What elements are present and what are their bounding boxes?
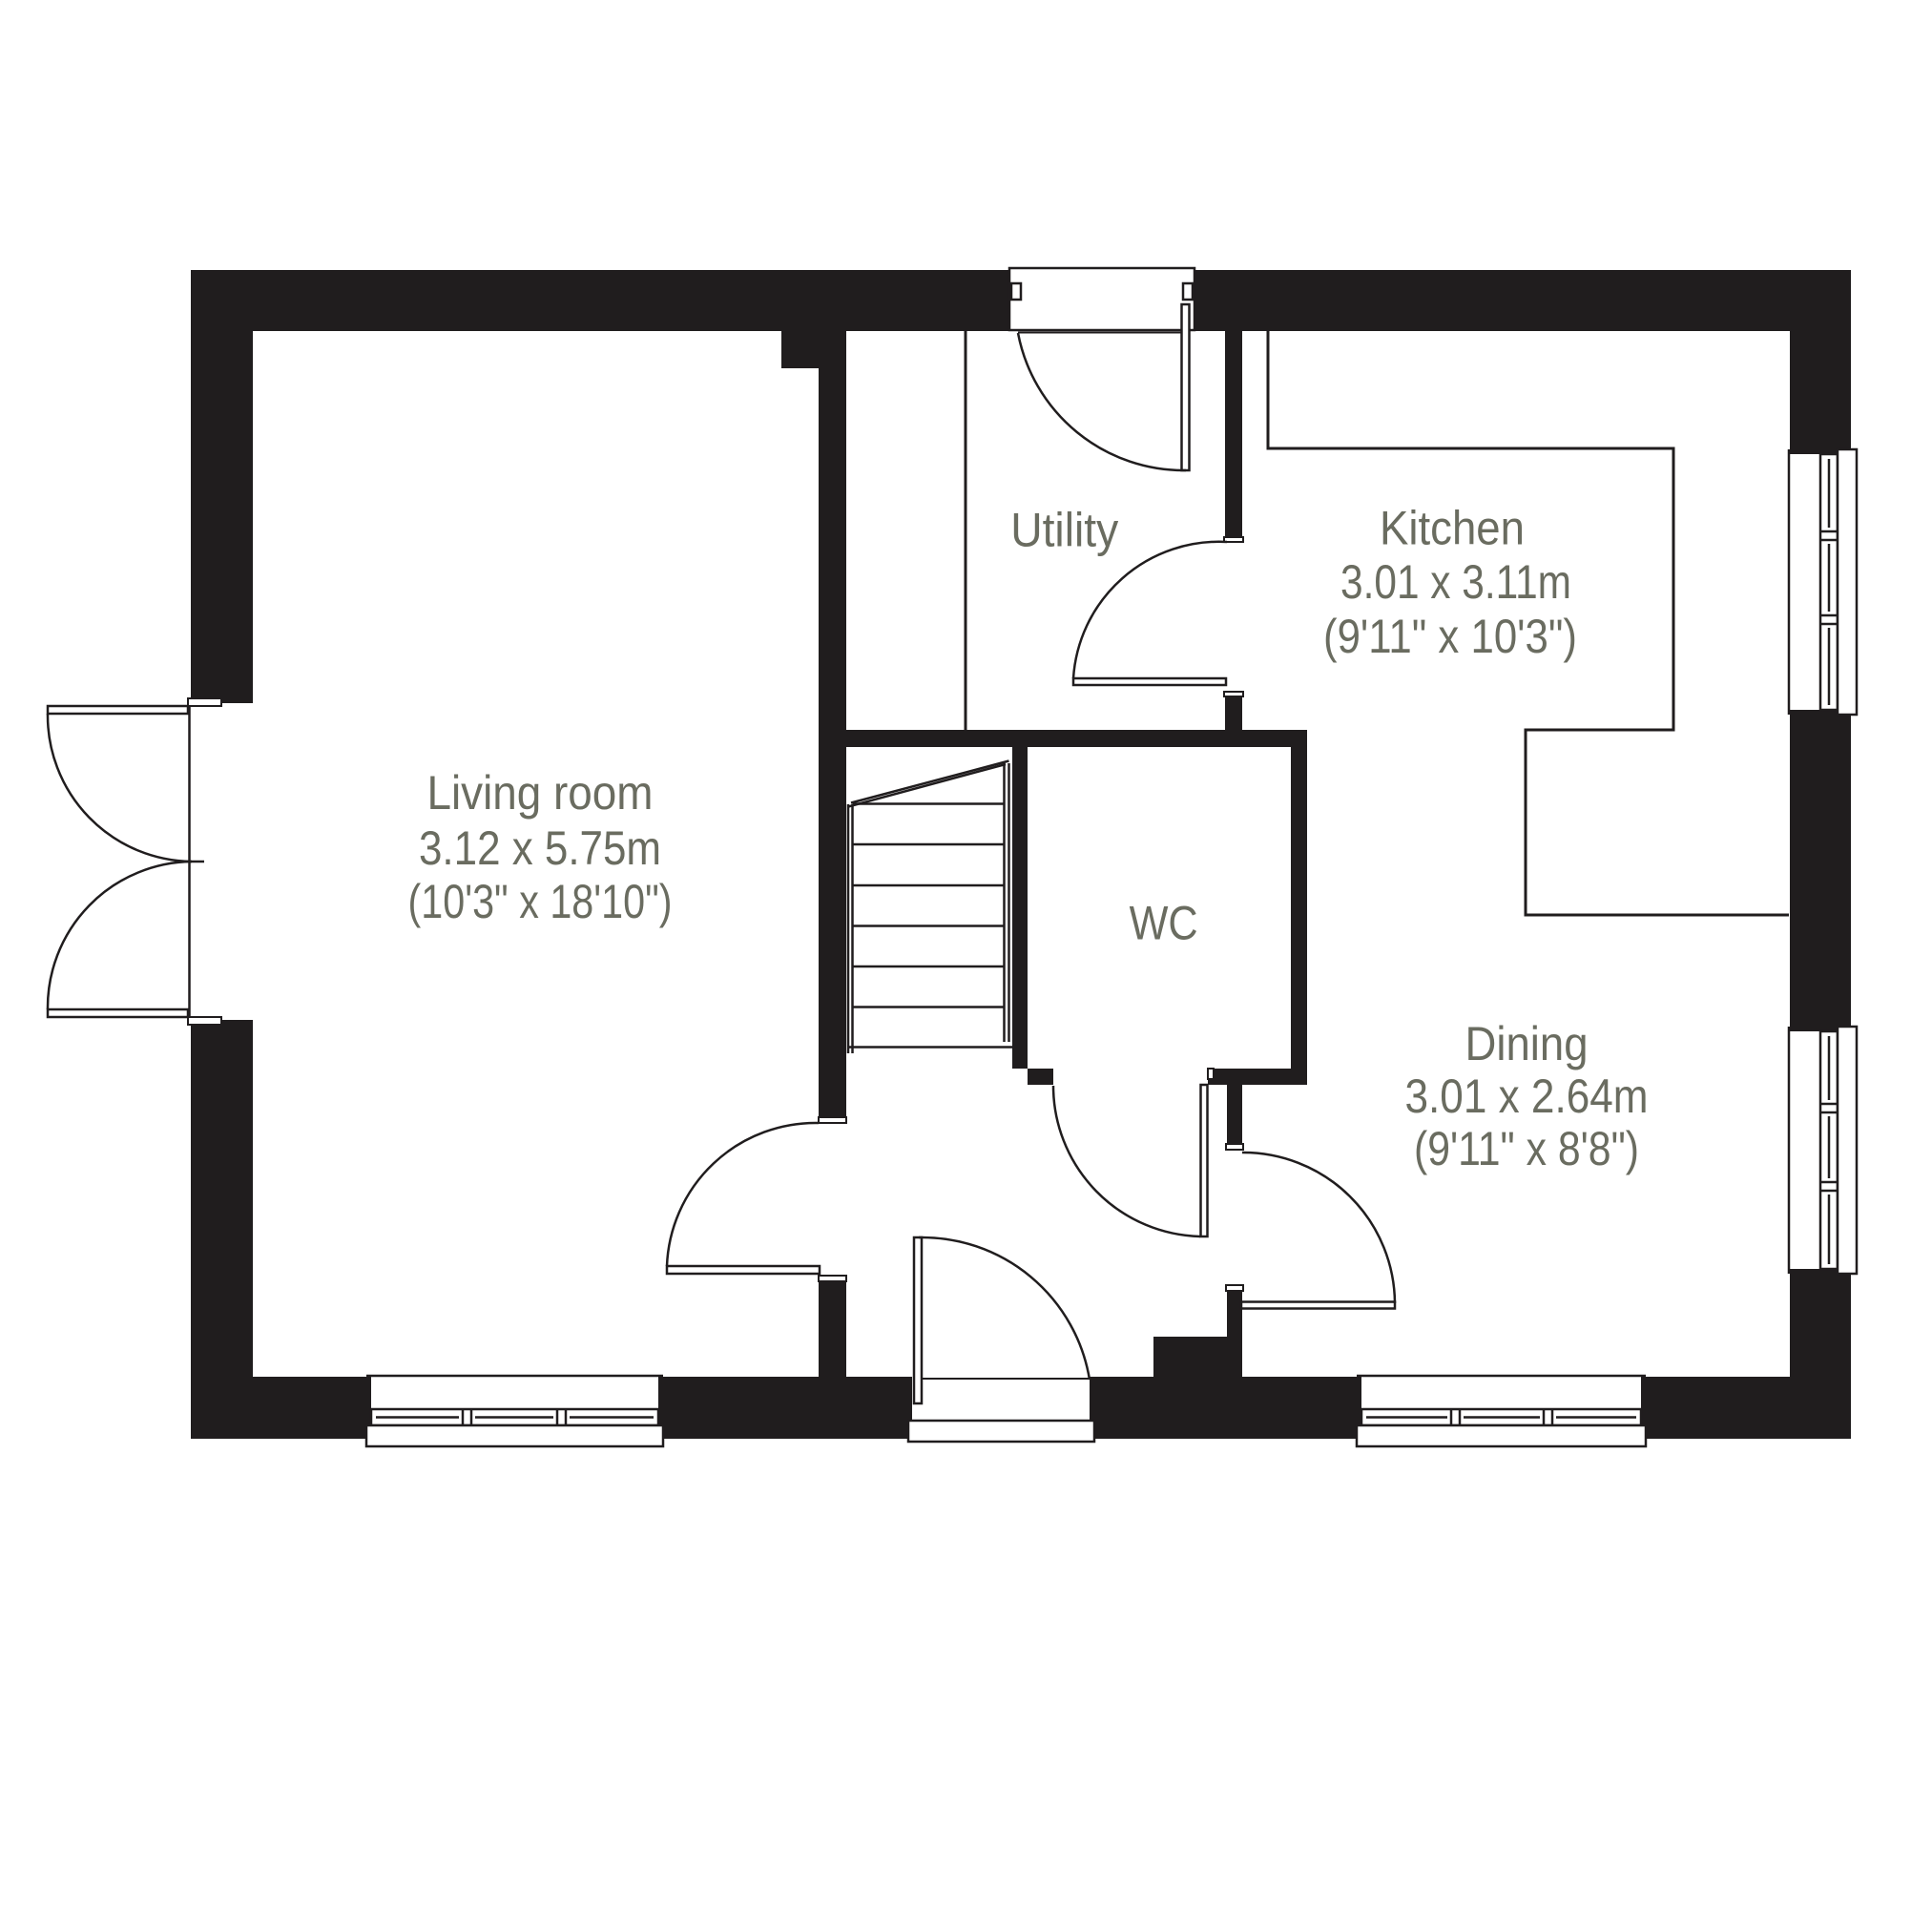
svg-text:3.01 x 2.64m: 3.01 x 2.64m xyxy=(1405,1070,1649,1123)
svg-text:Dining: Dining xyxy=(1465,1017,1589,1070)
svg-text:(9'11" x 10'3"): (9'11" x 10'3") xyxy=(1323,610,1577,663)
svg-text:Kitchen: Kitchen xyxy=(1380,502,1525,555)
svg-text:Living room: Living room xyxy=(427,766,654,820)
svg-text:3.12 x 5.75m: 3.12 x 5.75m xyxy=(419,821,661,875)
svg-text:(10'3" x 18'10"): (10'3" x 18'10") xyxy=(408,875,673,928)
svg-text:(9'11" x 8'8"): (9'11" x 8'8") xyxy=(1414,1122,1639,1175)
svg-text:Utility: Utility xyxy=(1010,504,1118,557)
svg-text:3.01 x 3.11m: 3.01 x 3.11m xyxy=(1340,555,1571,609)
svg-text:WC: WC xyxy=(1130,897,1198,950)
